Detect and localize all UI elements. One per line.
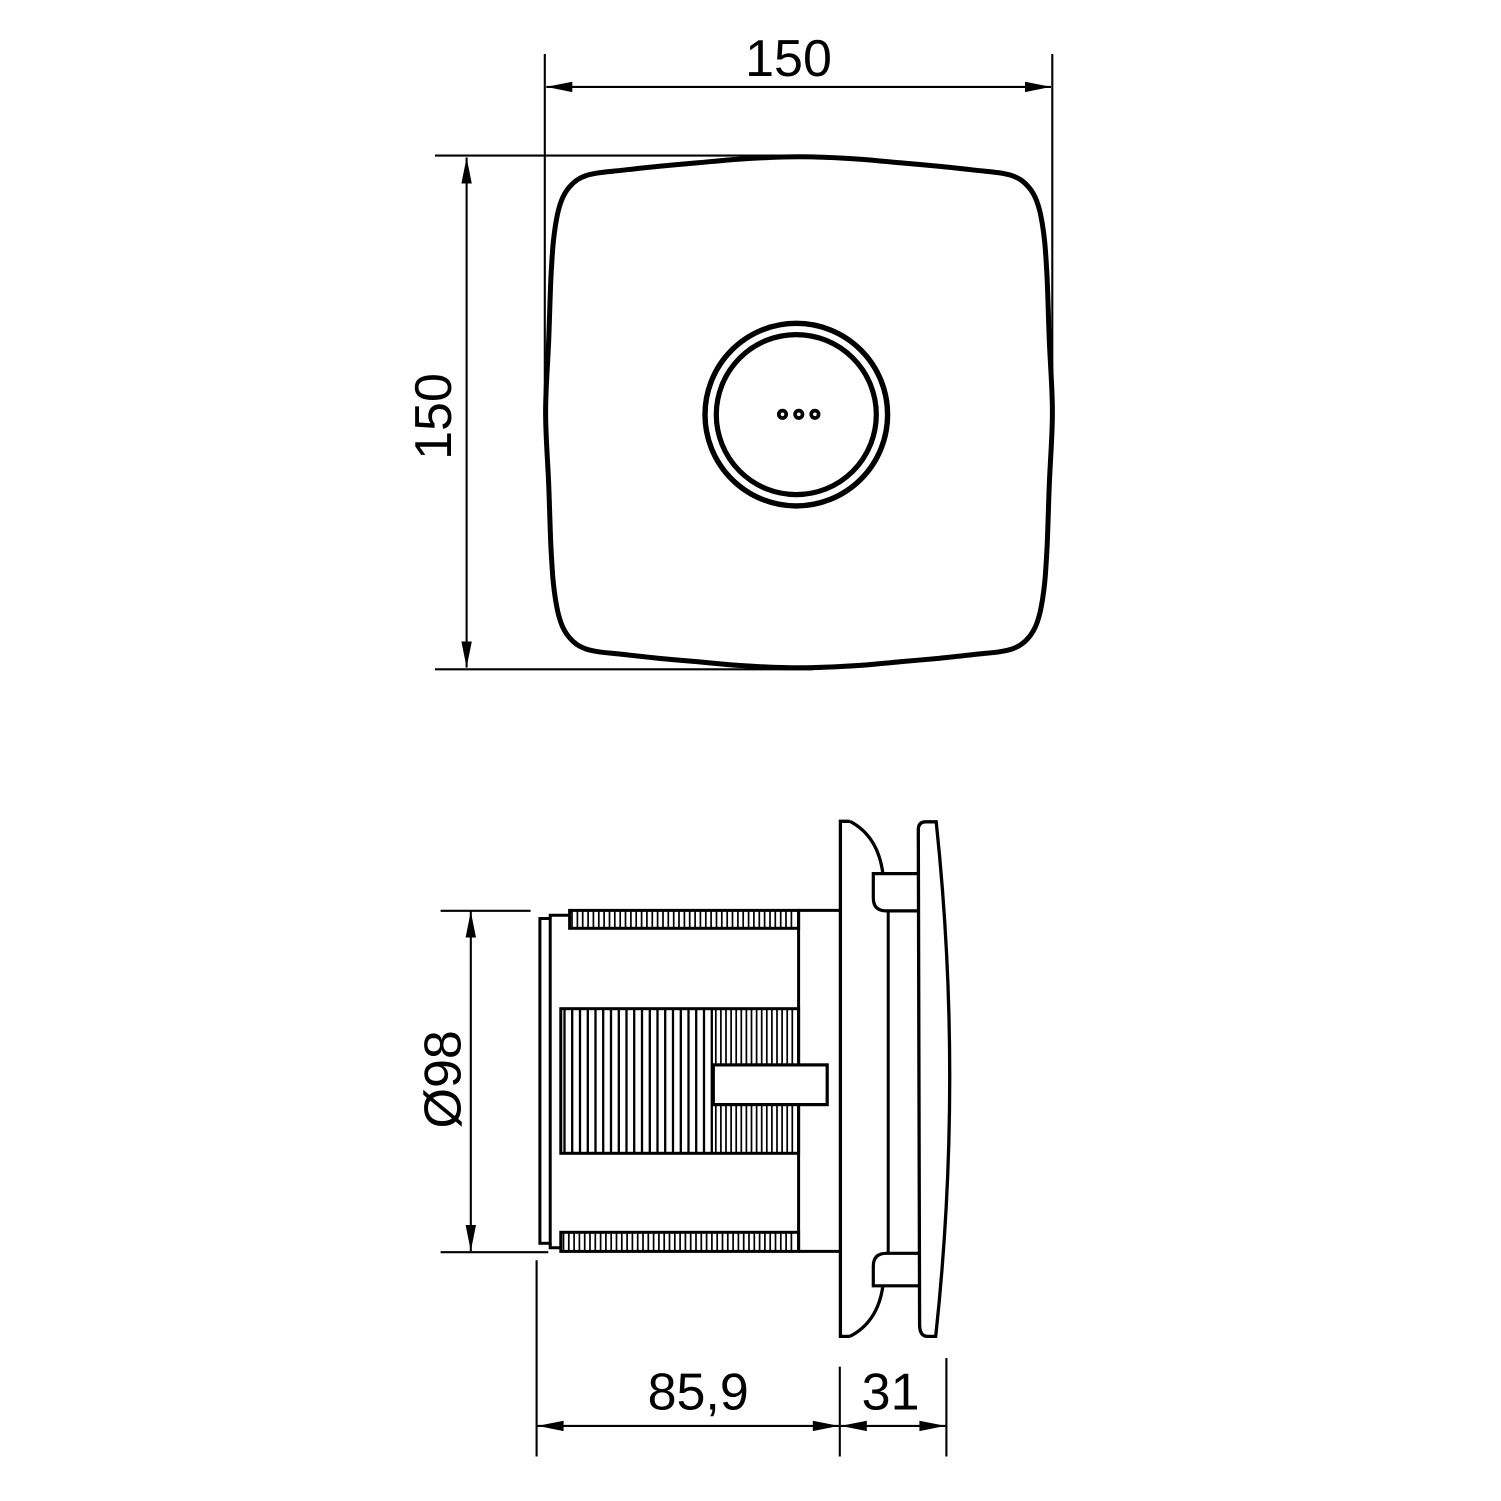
- svg-text:150: 150: [405, 373, 463, 460]
- svg-text:85,9: 85,9: [648, 1364, 749, 1422]
- svg-text:150: 150: [745, 30, 832, 88]
- svg-text:Ø98: Ø98: [415, 1030, 473, 1128]
- svg-text:31: 31: [862, 1364, 920, 1422]
